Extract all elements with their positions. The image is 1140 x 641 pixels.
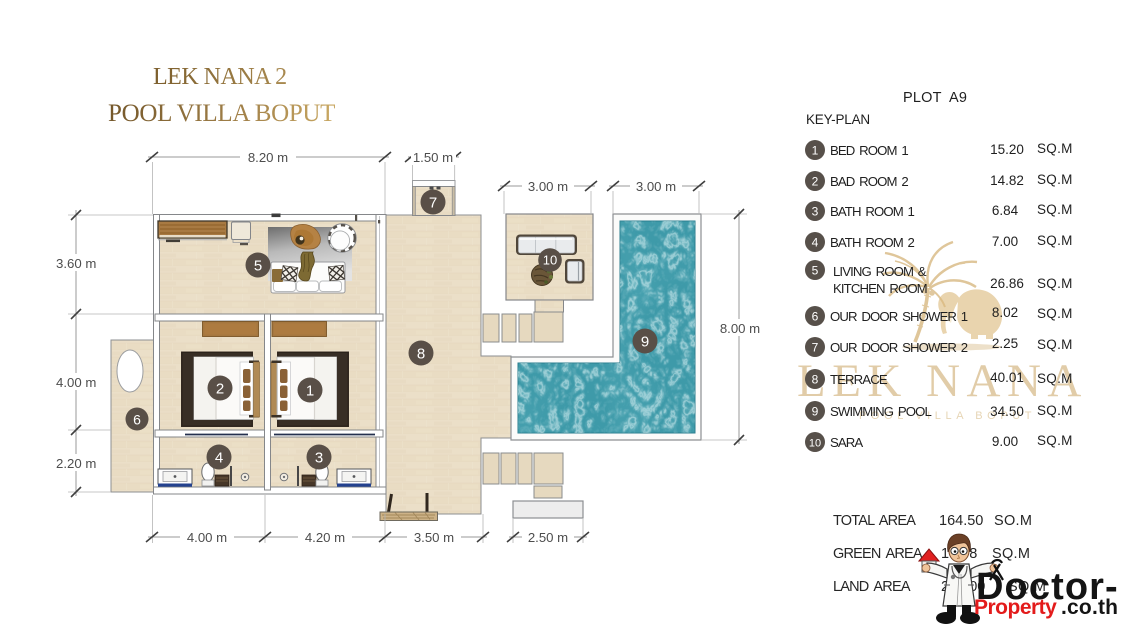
svg-text:3.50 m: 3.50 m xyxy=(414,530,454,545)
svg-text:GREEN AREA: GREEN AREA xyxy=(833,546,923,562)
svg-text:SQ.M: SQ.M xyxy=(1037,337,1073,352)
svg-text:2.50 m: 2.50 m xyxy=(528,530,568,545)
svg-text:LAND AREA: LAND AREA xyxy=(833,579,911,595)
svg-text:TERRACE: TERRACE xyxy=(830,372,888,387)
svg-text:8.02: 8.02 xyxy=(992,305,1018,320)
svg-text:BAD ROOM 2: BAD ROOM 2 xyxy=(830,174,908,189)
svg-text:SQ.M: SQ.M xyxy=(1037,172,1073,187)
svg-text:4: 4 xyxy=(215,450,223,467)
svg-text:4.00 m: 4.00 m xyxy=(187,530,227,545)
svg-text:SQ.M: SQ.M xyxy=(1037,141,1073,156)
svg-text:2: 2 xyxy=(216,381,224,398)
svg-text:9.00: 9.00 xyxy=(992,434,1018,449)
svg-text:SWIMMING POOL: SWIMMING POOL xyxy=(830,404,931,419)
svg-text:10: 10 xyxy=(543,253,557,268)
svg-text:3: 3 xyxy=(315,450,323,467)
svg-text:SARA: SARA xyxy=(830,435,863,450)
svg-text:6: 6 xyxy=(133,412,141,428)
svg-text:9: 9 xyxy=(812,405,819,419)
svg-text:KITCHEN ROOM: KITCHEN ROOM xyxy=(833,281,927,296)
svg-text:POOL VILLA BOPUT: POOL VILLA BOPUT xyxy=(108,100,335,127)
svg-text:SQ.M: SQ.M xyxy=(1037,306,1073,321)
svg-text:LEK NANA 2: LEK NANA 2 xyxy=(153,64,287,90)
svg-text:1.50 m: 1.50 m xyxy=(413,150,453,165)
svg-text:A9: A9 xyxy=(949,90,967,106)
svg-text:8: 8 xyxy=(417,346,425,363)
svg-text:1: 1 xyxy=(306,383,314,400)
svg-text:9: 9 xyxy=(641,334,649,351)
svg-text:BATH ROOM 1: BATH ROOM 1 xyxy=(830,204,915,219)
svg-text:BED ROOM 1: BED ROOM 1 xyxy=(830,143,908,158)
svg-text:4.20 m: 4.20 m xyxy=(305,530,345,545)
svg-text:2.25: 2.25 xyxy=(992,336,1018,351)
svg-text:SQ.M: SQ.M xyxy=(1037,202,1073,217)
svg-text:OUR DOOR SHOWER 2: OUR DOOR SHOWER 2 xyxy=(830,340,968,355)
svg-text:SO.M: SO.M xyxy=(994,513,1032,529)
svg-text:LIVING ROOM &: LIVING ROOM & xyxy=(833,264,927,279)
svg-text:SQ.M: SQ.M xyxy=(1037,276,1073,291)
svg-text:8.20 m: 8.20 m xyxy=(248,150,288,165)
svg-text:10: 10 xyxy=(809,438,821,450)
svg-text:SQ.M: SQ.M xyxy=(1037,233,1073,248)
svg-text:8.00 m: 8.00 m xyxy=(720,321,760,336)
svg-text:6.84: 6.84 xyxy=(992,203,1019,218)
svg-text:3.00 m: 3.00 m xyxy=(636,179,676,194)
svg-text:3.60 m: 3.60 m xyxy=(56,256,96,271)
svg-text:40.01: 40.01 xyxy=(990,370,1024,385)
svg-text:4.00 m: 4.00 m xyxy=(56,375,96,390)
svg-text:164.50: 164.50 xyxy=(939,513,983,529)
svg-text:7.00: 7.00 xyxy=(992,234,1018,249)
svg-text:KEY-PLAN: KEY-PLAN xyxy=(806,112,870,127)
svg-text:3: 3 xyxy=(812,205,819,219)
svg-text:7: 7 xyxy=(429,195,437,212)
svg-text:2.20 m: 2.20 m xyxy=(56,456,96,471)
svg-text:TOTAL AREA: TOTAL AREA xyxy=(833,513,916,529)
svg-text:2: 2 xyxy=(812,175,819,189)
svg-text:1: 1 xyxy=(812,144,819,158)
svg-text:6: 6 xyxy=(812,310,819,324)
svg-text:OUR DOOR SHOWER 1: OUR DOOR SHOWER 1 xyxy=(830,309,968,324)
svg-text:26.86: 26.86 xyxy=(990,276,1024,291)
svg-text:Property: Property xyxy=(974,596,1057,619)
svg-text:5: 5 xyxy=(812,264,819,278)
svg-text:14.82: 14.82 xyxy=(990,173,1024,188)
svg-text:.co.th: .co.th xyxy=(1061,596,1118,619)
svg-text:8: 8 xyxy=(812,373,819,387)
svg-text:3.00 m: 3.00 m xyxy=(528,179,568,194)
svg-text:7: 7 xyxy=(812,341,819,355)
svg-text:PLOT: PLOT xyxy=(903,90,942,106)
svg-text:SQ.M: SQ.M xyxy=(1037,371,1073,386)
svg-text:SQ.M: SQ.M xyxy=(1037,403,1073,418)
svg-text:SQ.M: SQ.M xyxy=(1037,433,1073,448)
svg-text:5: 5 xyxy=(254,258,262,275)
svg-text:15.20: 15.20 xyxy=(990,142,1024,157)
svg-text:BATH ROOM 2: BATH ROOM 2 xyxy=(830,235,915,250)
svg-text:34.50: 34.50 xyxy=(990,404,1024,419)
svg-text:4: 4 xyxy=(812,236,819,250)
